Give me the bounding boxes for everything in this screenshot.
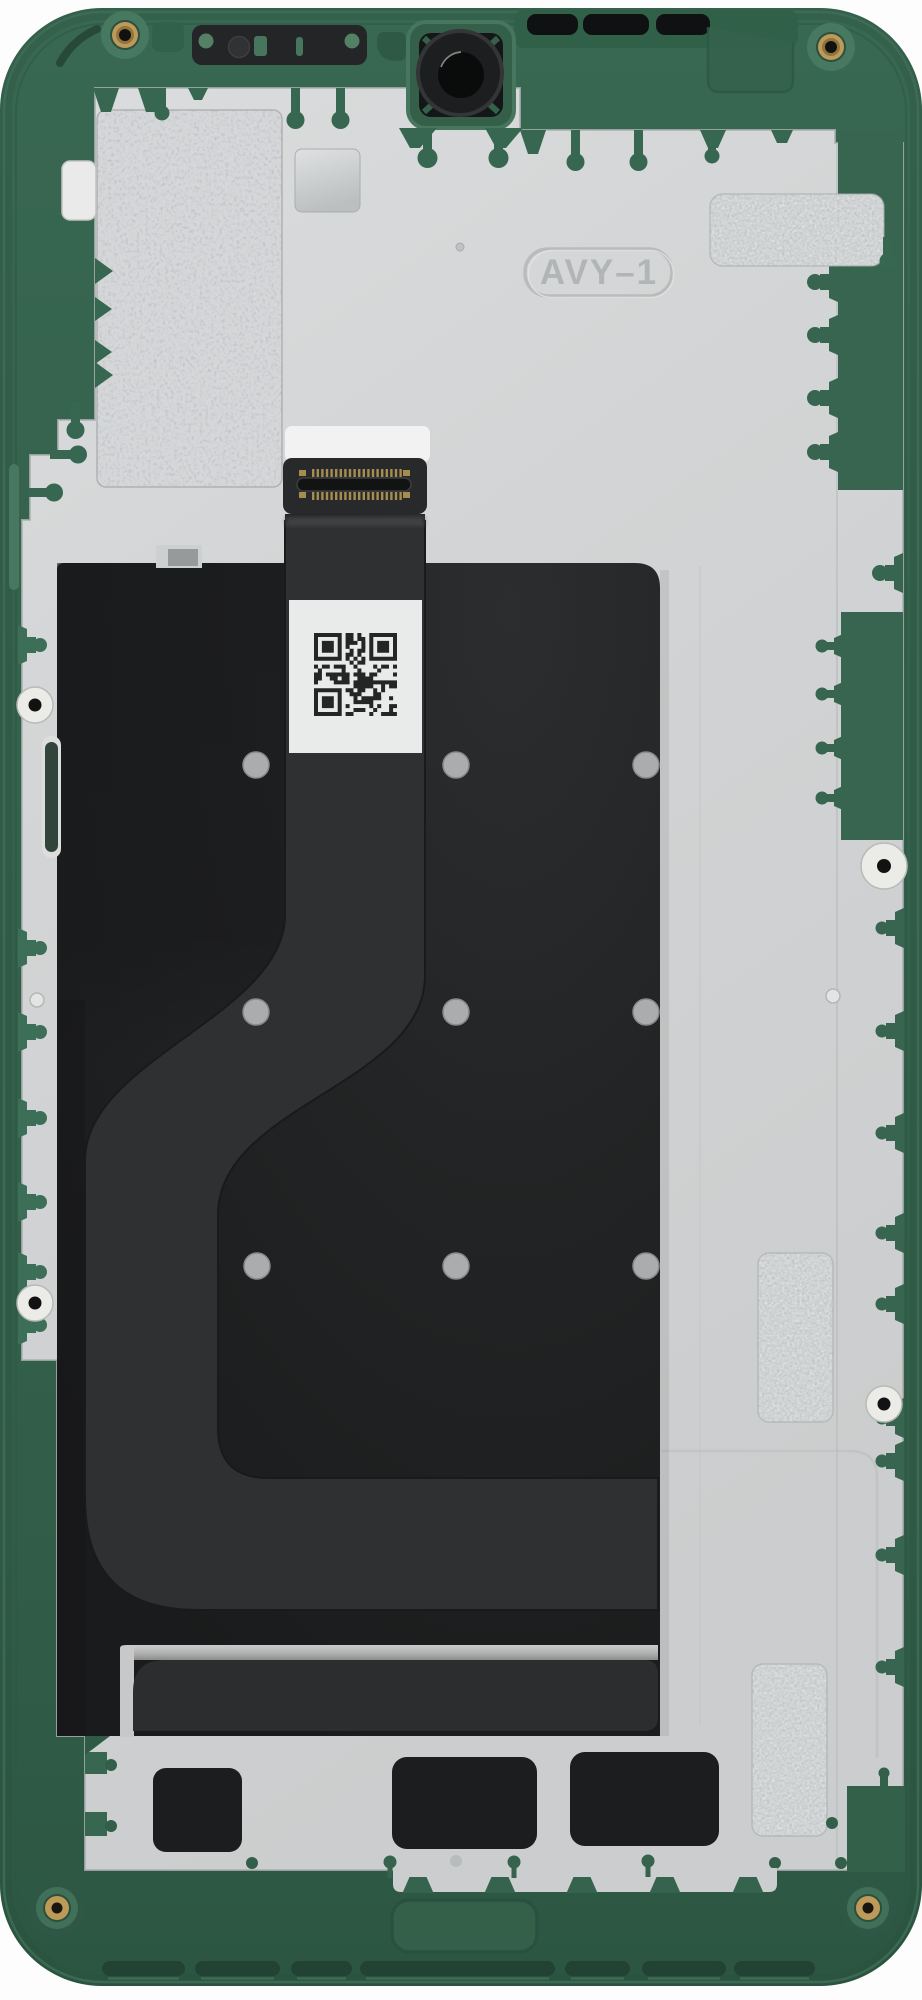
svg-text:AVY–1: AVY–1 — [540, 253, 658, 292]
